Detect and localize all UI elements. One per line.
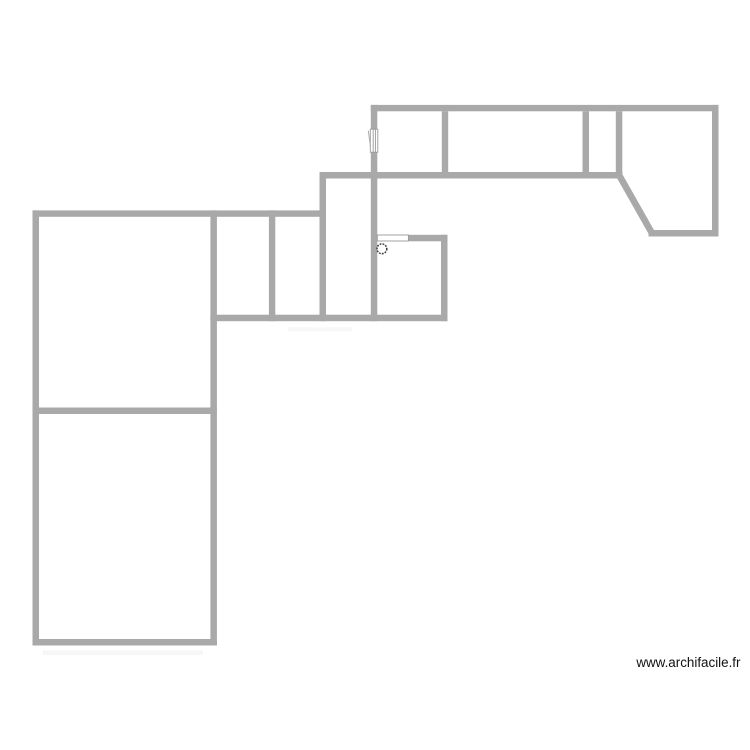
svg-text:www.archifacile.fr: www.archifacile.fr	[635, 655, 741, 670]
